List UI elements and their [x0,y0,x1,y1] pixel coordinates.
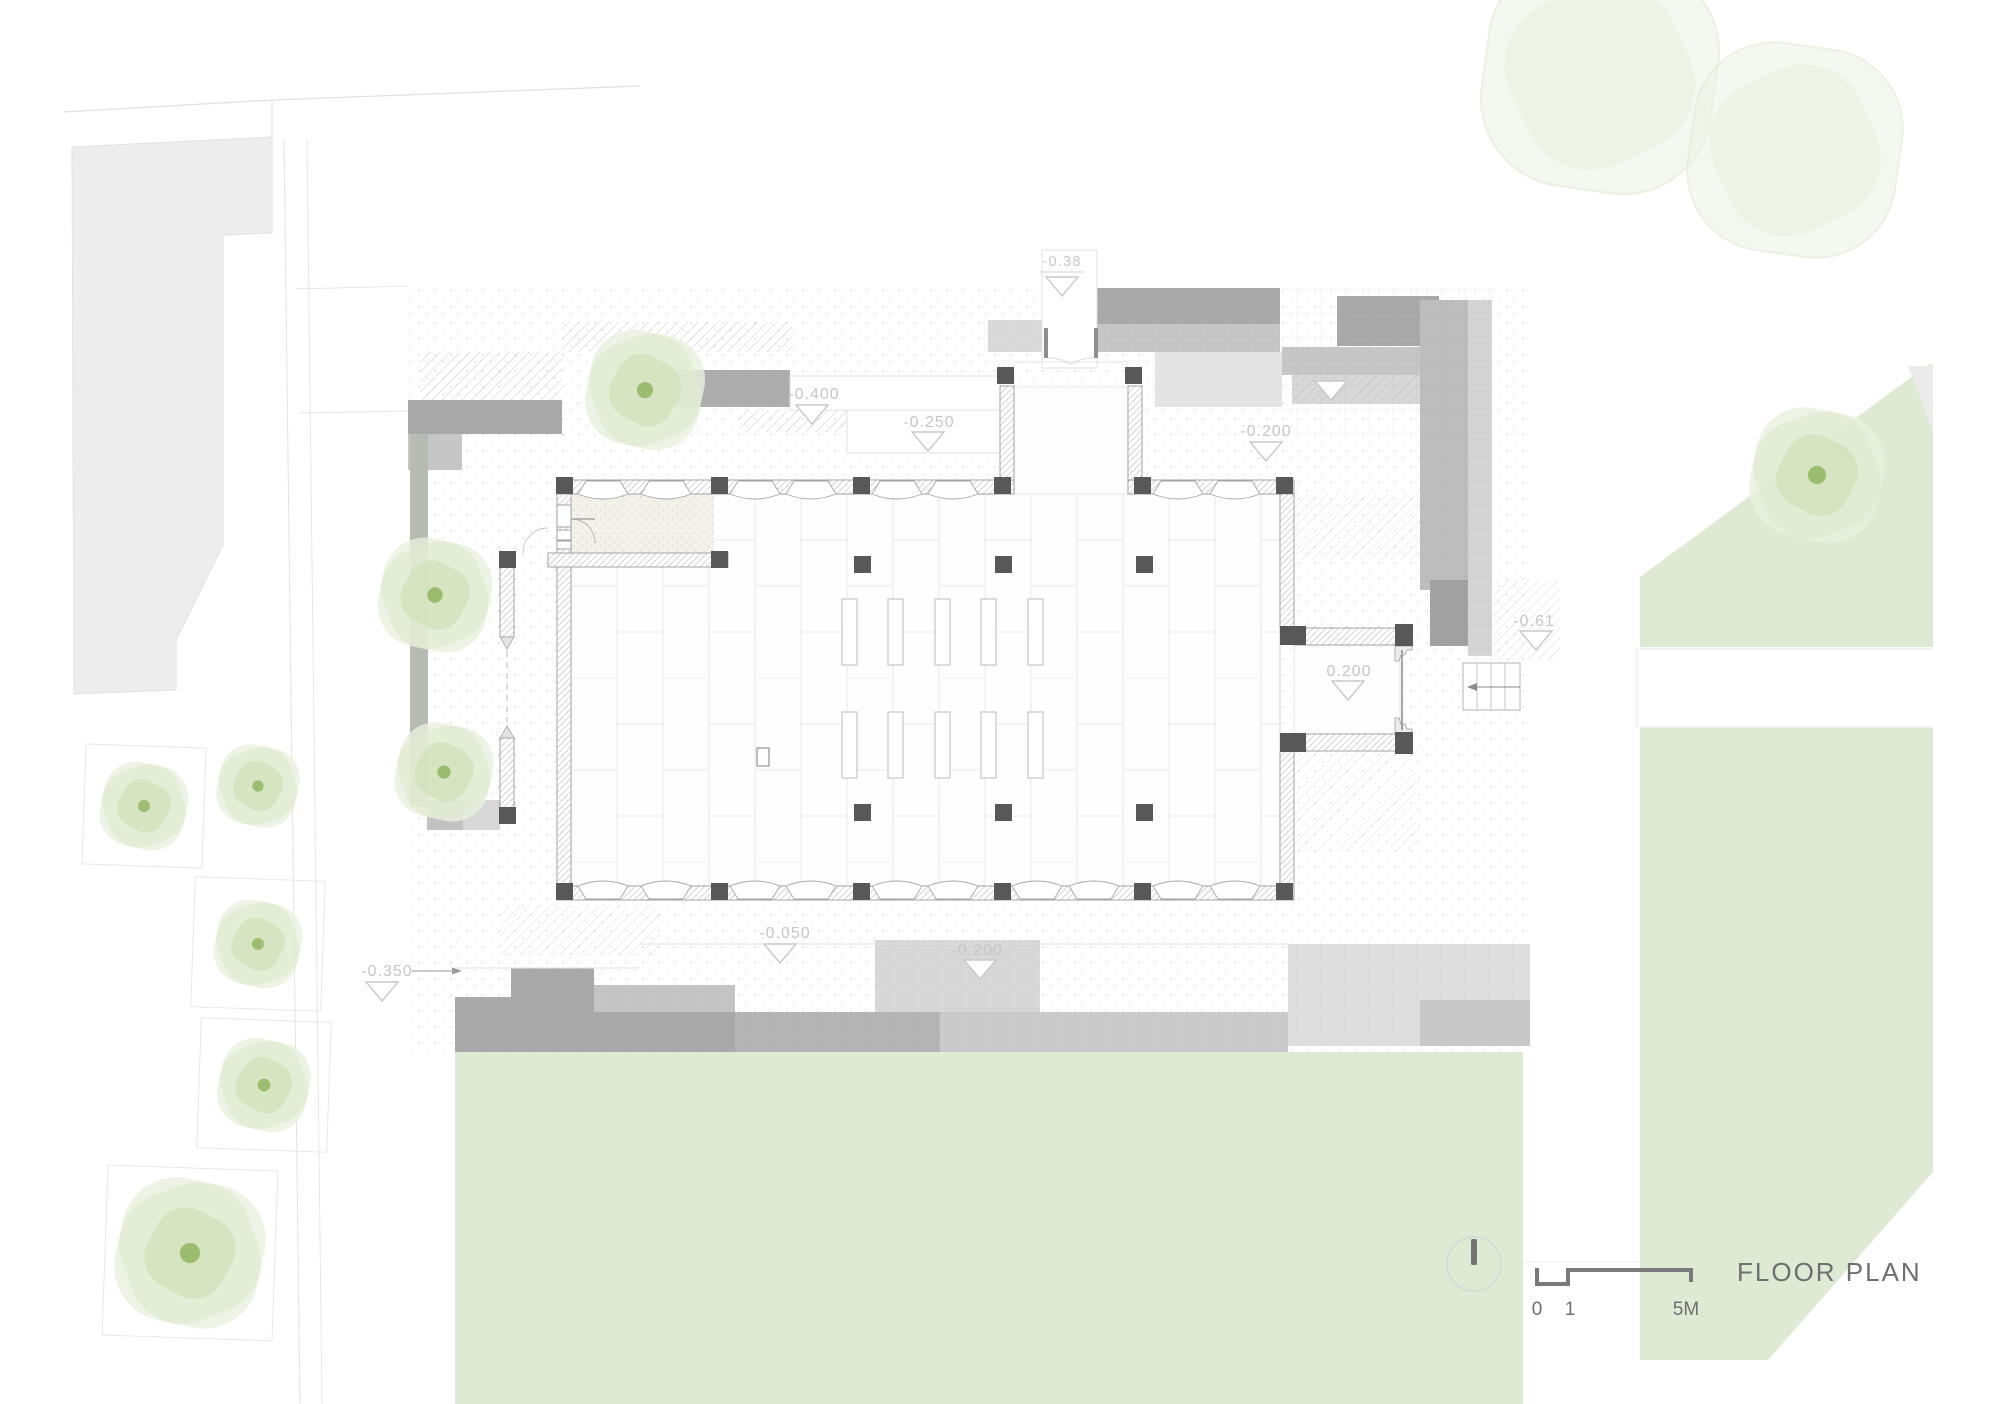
svg-text:-0.61: -0.61 [1513,613,1554,630]
svg-text:-0.400: -0.400 [788,386,839,403]
east-steps [1463,663,1520,710]
annex-fittings [557,505,571,549]
lawn-south [455,1052,1523,1404]
floor-plan-drawing: -0.38 -0.050 -0.200 -0.400 -0.250 -0.61 … [0,0,2000,1404]
svg-text:1: 1 [1565,1299,1576,1320]
north-porch-floor [1014,387,1128,494]
svg-text:-0.200: -0.200 [1240,423,1291,440]
page-title: FLOOR PLAN [1737,1257,1922,1287]
floor-plan-sheet: -0.38 -0.050 -0.200 -0.400 -0.250 -0.61 … [0,0,2000,1404]
svg-text:5M: 5M [1673,1299,1699,1320]
svg-text:-0.200: -0.200 [951,942,1002,959]
svg-text:-0.250: -0.250 [903,414,954,431]
svg-text:-0.38: -0.38 [1042,253,1081,270]
lectern [757,748,769,766]
svg-text:0.200: 0.200 [1326,663,1371,680]
svg-text:-0.050: -0.050 [1310,361,1361,378]
neighbor-building [72,137,272,694]
svg-text:-0.350: -0.350 [361,963,412,980]
svg-text:0: 0 [1532,1299,1543,1320]
svg-text:-0.050: -0.050 [759,925,810,942]
